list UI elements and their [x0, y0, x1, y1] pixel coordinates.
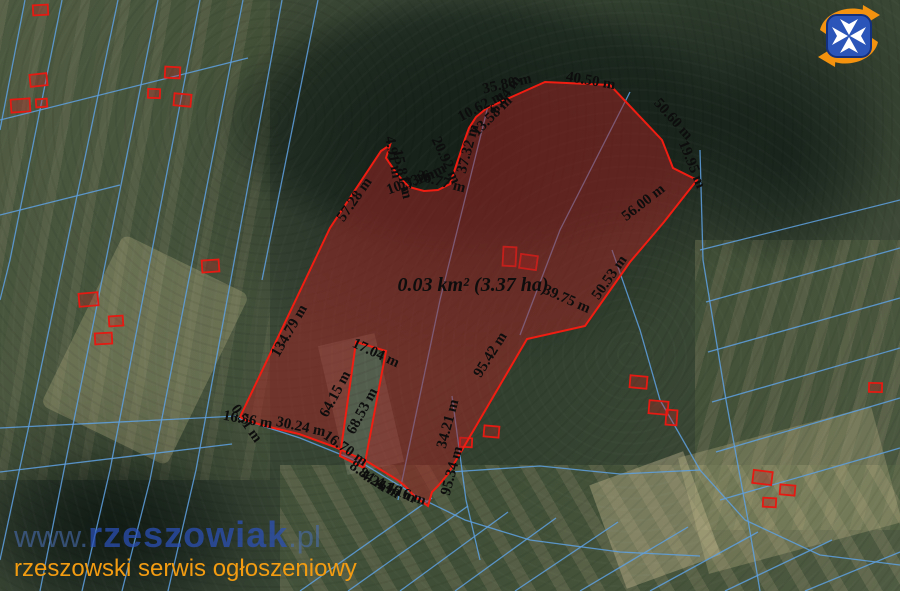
building-outline	[29, 73, 47, 87]
building-outline	[869, 383, 882, 392]
building-outline	[33, 5, 49, 16]
parcel-line	[712, 348, 900, 402]
building-outline	[148, 89, 160, 98]
building-outline	[630, 375, 648, 388]
rzeszowiak-logo	[806, 0, 892, 74]
logo-shield	[827, 15, 871, 57]
parcel-line	[348, 506, 468, 591]
map-screenshot: 134.79 m57.28 m4.91 m15.81 m10.33 m27.16…	[0, 0, 900, 591]
watermark-tagline: rzeszowski serwis ogłoszeniowy	[14, 556, 357, 581]
parcel-line	[0, 444, 232, 472]
map-overlay: 134.79 m57.28 m4.91 m15.81 m10.33 m27.16…	[0, 0, 900, 591]
parcel-line	[700, 150, 760, 591]
parcel-line	[708, 298, 900, 352]
watermark-url-suffix: .pl	[288, 519, 321, 554]
building-outline	[95, 333, 113, 345]
watermark-url: www.rzeszowiak.pl	[14, 516, 357, 554]
building-outline	[36, 99, 48, 108]
parcel-line	[700, 200, 900, 250]
building-outline	[109, 316, 124, 327]
area-label: 0.03 km² (3.37 ha)	[398, 274, 549, 296]
building-outline	[78, 292, 98, 307]
parcel-line	[262, 0, 318, 280]
parcel-line	[515, 522, 618, 591]
parcel-line	[716, 398, 900, 452]
parcel-line	[706, 248, 900, 302]
parcel-line	[0, 185, 120, 215]
building-outline	[202, 259, 220, 272]
building-outline	[780, 484, 796, 495]
building-outline	[665, 410, 677, 426]
building-outline	[165, 67, 181, 79]
parcel-line	[725, 540, 832, 591]
parcel-line	[400, 512, 508, 591]
parcel-line	[650, 532, 758, 591]
parcel-line	[805, 552, 900, 591]
building-outline	[763, 498, 776, 508]
parcel-line	[0, 0, 118, 560]
parcel-line	[0, 58, 248, 120]
parcel-line	[455, 518, 556, 591]
building-outline	[752, 470, 772, 485]
building-outline	[174, 93, 192, 106]
parcel-line	[720, 448, 900, 500]
parcel-line	[450, 466, 700, 474]
watermark: www.rzeszowiak.pl rzeszowski serwis ogło…	[14, 516, 357, 581]
building-outline	[11, 98, 31, 112]
parcel-line	[0, 0, 62, 300]
building-outline	[484, 425, 500, 437]
watermark-brand: rzeszowiak	[88, 514, 288, 555]
watermark-url-prefix: www.	[14, 519, 88, 554]
